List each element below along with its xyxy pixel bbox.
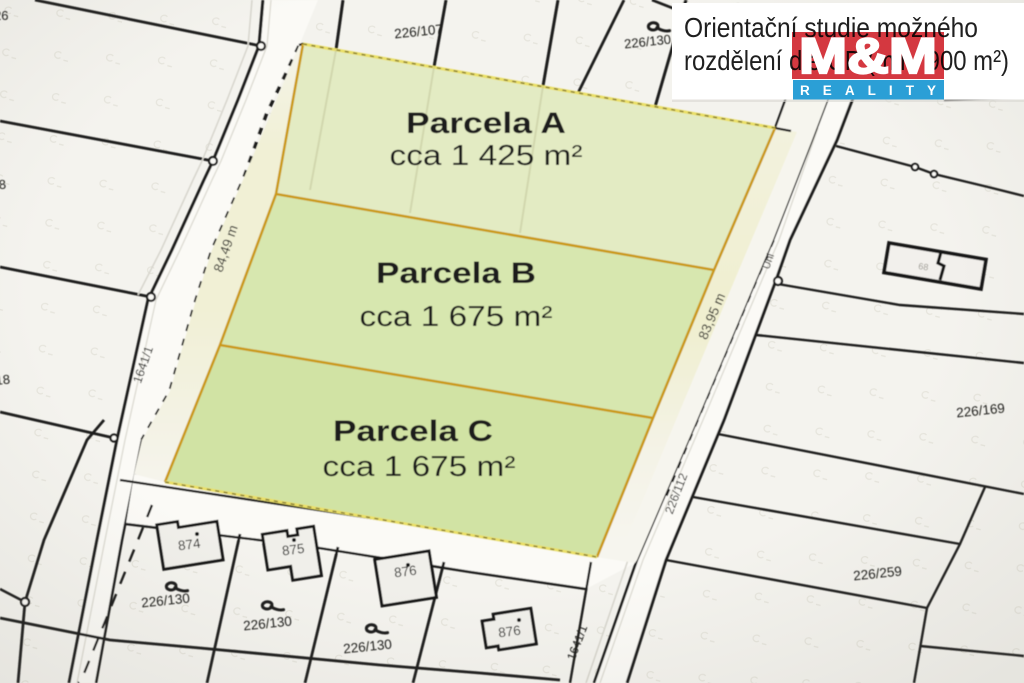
- svg-text:M&M: M&M: [799, 28, 937, 84]
